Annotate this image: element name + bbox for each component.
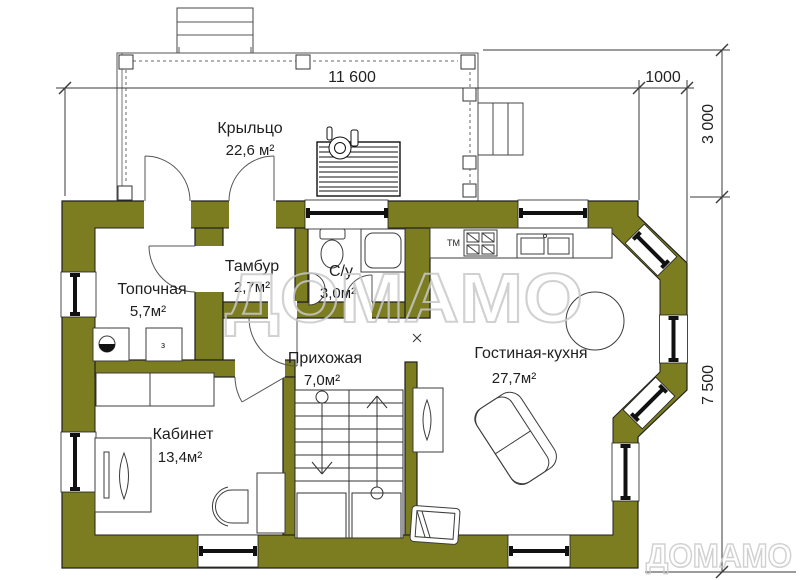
bench (410, 505, 460, 544)
window-left-boiler (61, 272, 96, 317)
stair-landing (297, 493, 346, 538)
dim-porch-depth: 3 000 (700, 104, 717, 144)
window-top-kitchen (518, 200, 588, 229)
tv-stand (413, 388, 443, 452)
porch-side-steps (478, 103, 523, 155)
desk (95, 438, 151, 512)
dim-house-depth: 7 500 (700, 365, 717, 405)
watermark-corner: ДОМАМО (646, 537, 792, 574)
kitchen-sink (517, 234, 573, 258)
svg-text:5,7м²: 5,7м² (130, 303, 166, 320)
floor-plan-page: 11 600 1000 3 000 7 500 Крыльцо22,6 м² Т… (0, 0, 800, 580)
stair-landing (352, 493, 401, 538)
stove (464, 230, 497, 256)
daybed (96, 373, 214, 406)
floor-plan-canvas: 11 600 1000 3 000 7 500 Крыльцо22,6 м² Т… (0, 0, 800, 580)
svg-text:Крыльцо: Крыльцо (217, 120, 282, 137)
tm-note: ТМ (447, 238, 460, 248)
exterior-steps-top (177, 8, 253, 53)
porch-deck (117, 53, 478, 201)
dim-bay-depth: 1000 (645, 69, 681, 86)
window-top-bath (305, 200, 388, 229)
staircase (295, 390, 403, 538)
window-bottom-living (508, 535, 570, 567)
svg-text:27,7м²: 27,7м² (492, 370, 537, 387)
dim-total-width: 11 600 (328, 69, 376, 86)
svg-text:Гостиная-кухня: Гостиная-кухня (474, 345, 587, 362)
svg-text:22,6 м²: 22,6 м² (226, 142, 275, 159)
svg-text:7,0м²: 7,0м² (304, 372, 340, 389)
window-bay-middle (660, 315, 688, 363)
watermark-center: ДОМАМО (225, 259, 583, 337)
cabinet (257, 473, 285, 533)
svg-text:Топочная: Топочная (117, 281, 186, 298)
boiler-unit-note: з (161, 340, 165, 350)
window-left-study (61, 432, 96, 492)
study-chair (212, 487, 248, 526)
svg-text:13,4м²: 13,4м² (158, 449, 203, 466)
svg-text:Прихожая: Прихожая (288, 350, 362, 367)
svg-text:Кабинет: Кабинет (153, 426, 215, 443)
window-bay-lower-side (612, 443, 639, 501)
window-bottom-study (198, 535, 258, 567)
porch-structure (117, 8, 523, 201)
